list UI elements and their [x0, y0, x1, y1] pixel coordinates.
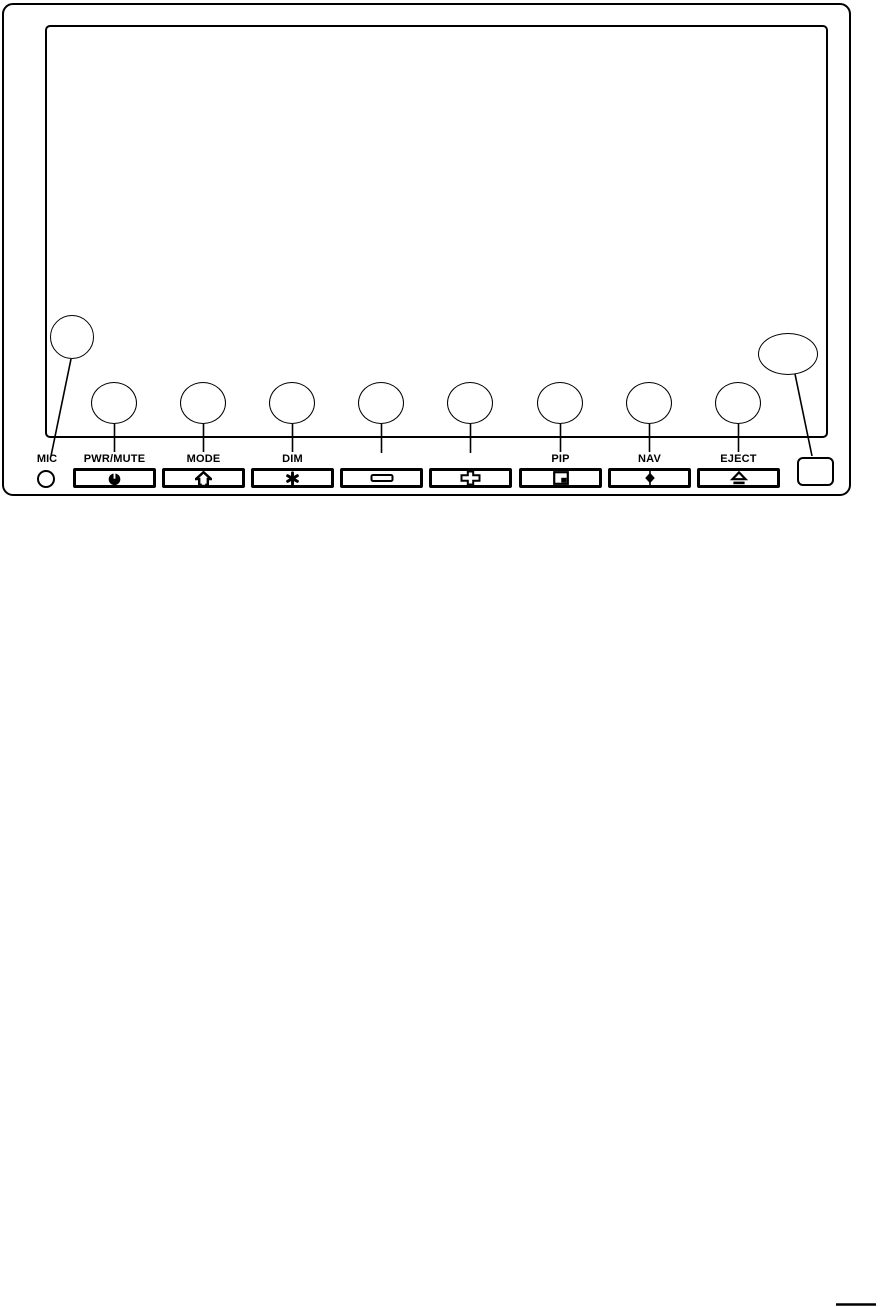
power-icon [107, 471, 122, 486]
nav-icon [642, 470, 658, 486]
display-screen [45, 25, 828, 438]
callout-circle-nav [626, 382, 672, 424]
brightness-down-button [340, 468, 423, 488]
eject-label: EJECT [697, 453, 780, 465]
mode-button [162, 468, 245, 488]
nav-button [608, 468, 691, 488]
card-slot-icon [797, 457, 834, 486]
callout-circle-dim [269, 382, 315, 424]
dim-label: DIM [251, 453, 334, 465]
home-icon [195, 471, 212, 486]
eject-icon [730, 471, 748, 485]
callout-circle-eject [715, 382, 761, 424]
pip-button [519, 468, 602, 488]
callout-circle-minus [358, 382, 404, 424]
eject-button [697, 468, 780, 488]
nav-label: NAV [608, 453, 691, 465]
pwr-mute-button [73, 468, 156, 488]
callout-circle-mic [50, 315, 94, 359]
callout-circle-pwr-mute [91, 382, 137, 424]
pwr-mute-label: PWR/MUTE [73, 453, 156, 465]
pip-icon [553, 471, 569, 485]
dim-button [251, 468, 334, 488]
brightness-icon [285, 471, 300, 486]
mic-label: MIC [30, 453, 64, 465]
mic-hole-icon [37, 470, 55, 488]
minus-icon [370, 472, 394, 484]
callout-circle-plus [447, 382, 493, 424]
callout-circle-mode [180, 382, 226, 424]
mode-label: MODE [162, 453, 245, 465]
callout-circle-card-slot [758, 333, 818, 375]
callout-circle-pip [537, 382, 583, 424]
plus-icon [460, 470, 481, 486]
pip-label: PIP [519, 453, 602, 465]
brightness-up-button [429, 468, 512, 488]
manual-page: MIC PWR/MUTE MODE DIM PIP NAV EJECT [0, 0, 883, 1307]
